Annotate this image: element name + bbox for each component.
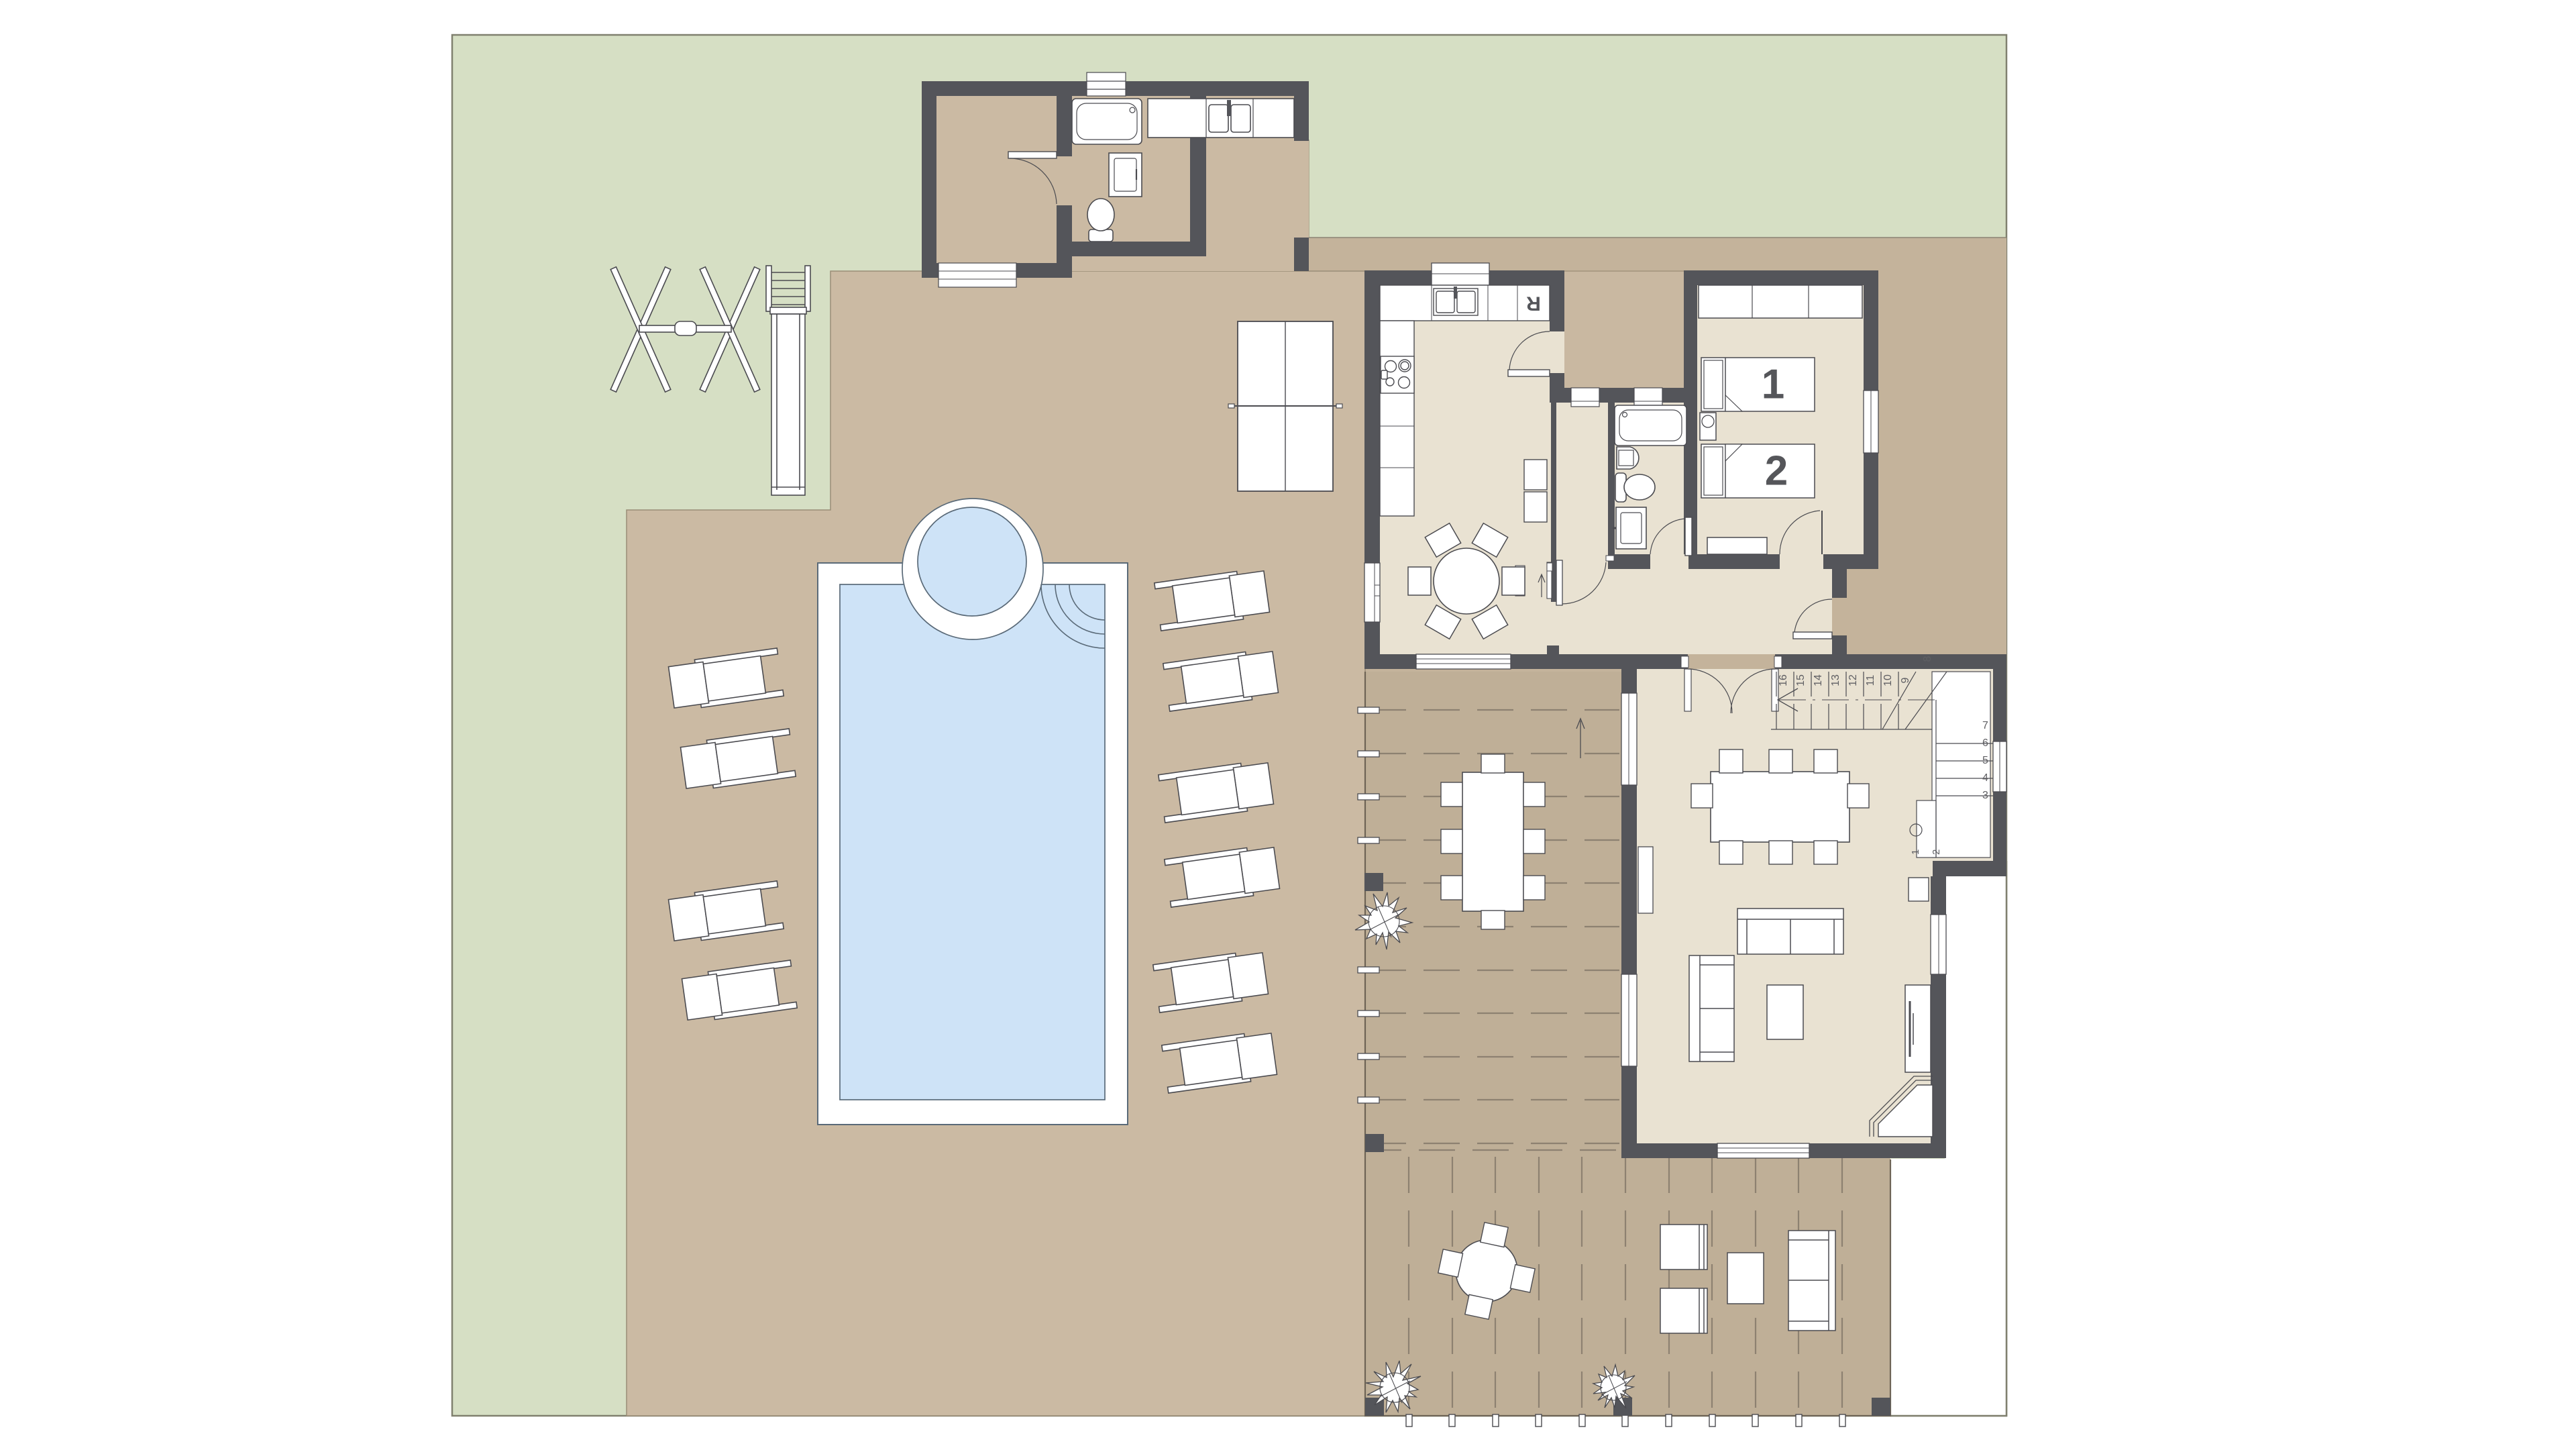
- svg-text:13: 13: [1830, 674, 1841, 686]
- svg-text:8: 8: [1922, 656, 1933, 662]
- svg-text:10: 10: [1882, 674, 1894, 686]
- svg-text:9: 9: [1900, 677, 1911, 683]
- svg-text:7: 7: [1982, 720, 1988, 731]
- svg-text:2: 2: [1931, 849, 1942, 855]
- svg-text:15: 15: [1795, 674, 1807, 686]
- svg-text:14: 14: [1813, 674, 1824, 686]
- svg-text:6: 6: [1982, 737, 1988, 749]
- svg-text:11: 11: [1865, 675, 1876, 686]
- svg-text:R: R: [1526, 293, 1541, 315]
- svg-text:1: 1: [1910, 849, 1921, 855]
- svg-text:2: 2: [1765, 448, 1788, 495]
- svg-text:3: 3: [1982, 790, 1988, 801]
- svg-text:4: 4: [1982, 772, 1988, 784]
- svg-text:12: 12: [1847, 674, 1859, 686]
- svg-text:1: 1: [1762, 362, 1784, 408]
- svg-text:5: 5: [1982, 755, 1988, 766]
- svg-text:16: 16: [1778, 674, 1789, 686]
